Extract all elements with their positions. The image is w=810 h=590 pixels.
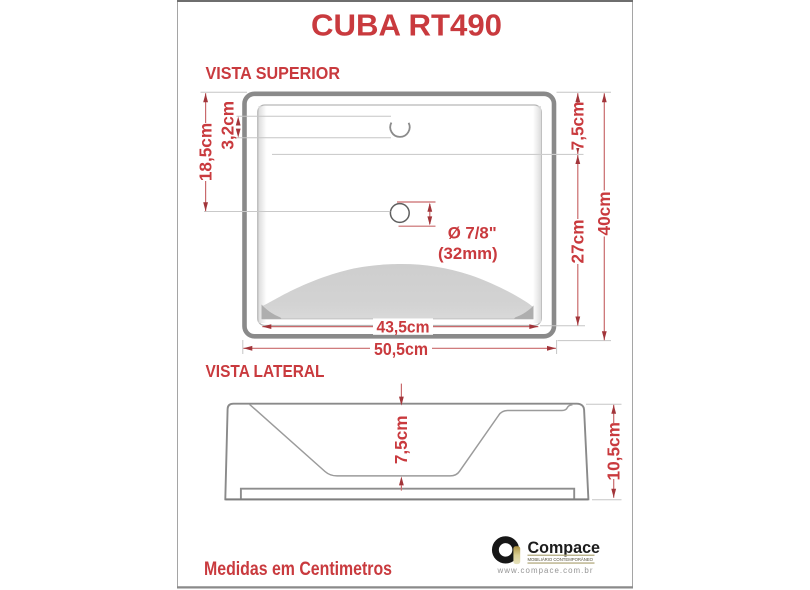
svg-text:10,5cm: 10,5cm xyxy=(604,422,624,480)
svg-text:MOBILIÁRIO CONTEMPORÂNEO: MOBILIÁRIO CONTEMPORÂNEO xyxy=(528,557,594,562)
svg-text:43,5cm: 43,5cm xyxy=(377,317,430,336)
svg-text:7,5cm: 7,5cm xyxy=(568,102,588,151)
svg-text:Medidas em Centimetros: Medidas em Centimetros xyxy=(204,558,392,580)
svg-text:VISTA LATERAL: VISTA LATERAL xyxy=(206,361,325,381)
svg-text:27cm: 27cm xyxy=(568,220,588,264)
svg-text:7,5cm: 7,5cm xyxy=(391,415,411,464)
svg-text:50,5cm: 50,5cm xyxy=(374,339,428,359)
svg-text:18,5cm: 18,5cm xyxy=(196,123,216,181)
svg-text:3,2cm: 3,2cm xyxy=(218,101,238,150)
svg-text:VISTA SUPERIOR: VISTA SUPERIOR xyxy=(206,63,341,83)
svg-text:40cm: 40cm xyxy=(594,192,614,236)
svg-text:CUBA RT490: CUBA RT490 xyxy=(311,8,502,43)
svg-text:Ø 7/8": Ø 7/8" xyxy=(448,223,497,242)
svg-text:(32mm): (32mm) xyxy=(438,244,498,263)
svg-text:Compace: Compace xyxy=(528,538,601,557)
svg-text:www.compace.com.br: www.compace.com.br xyxy=(497,566,593,575)
